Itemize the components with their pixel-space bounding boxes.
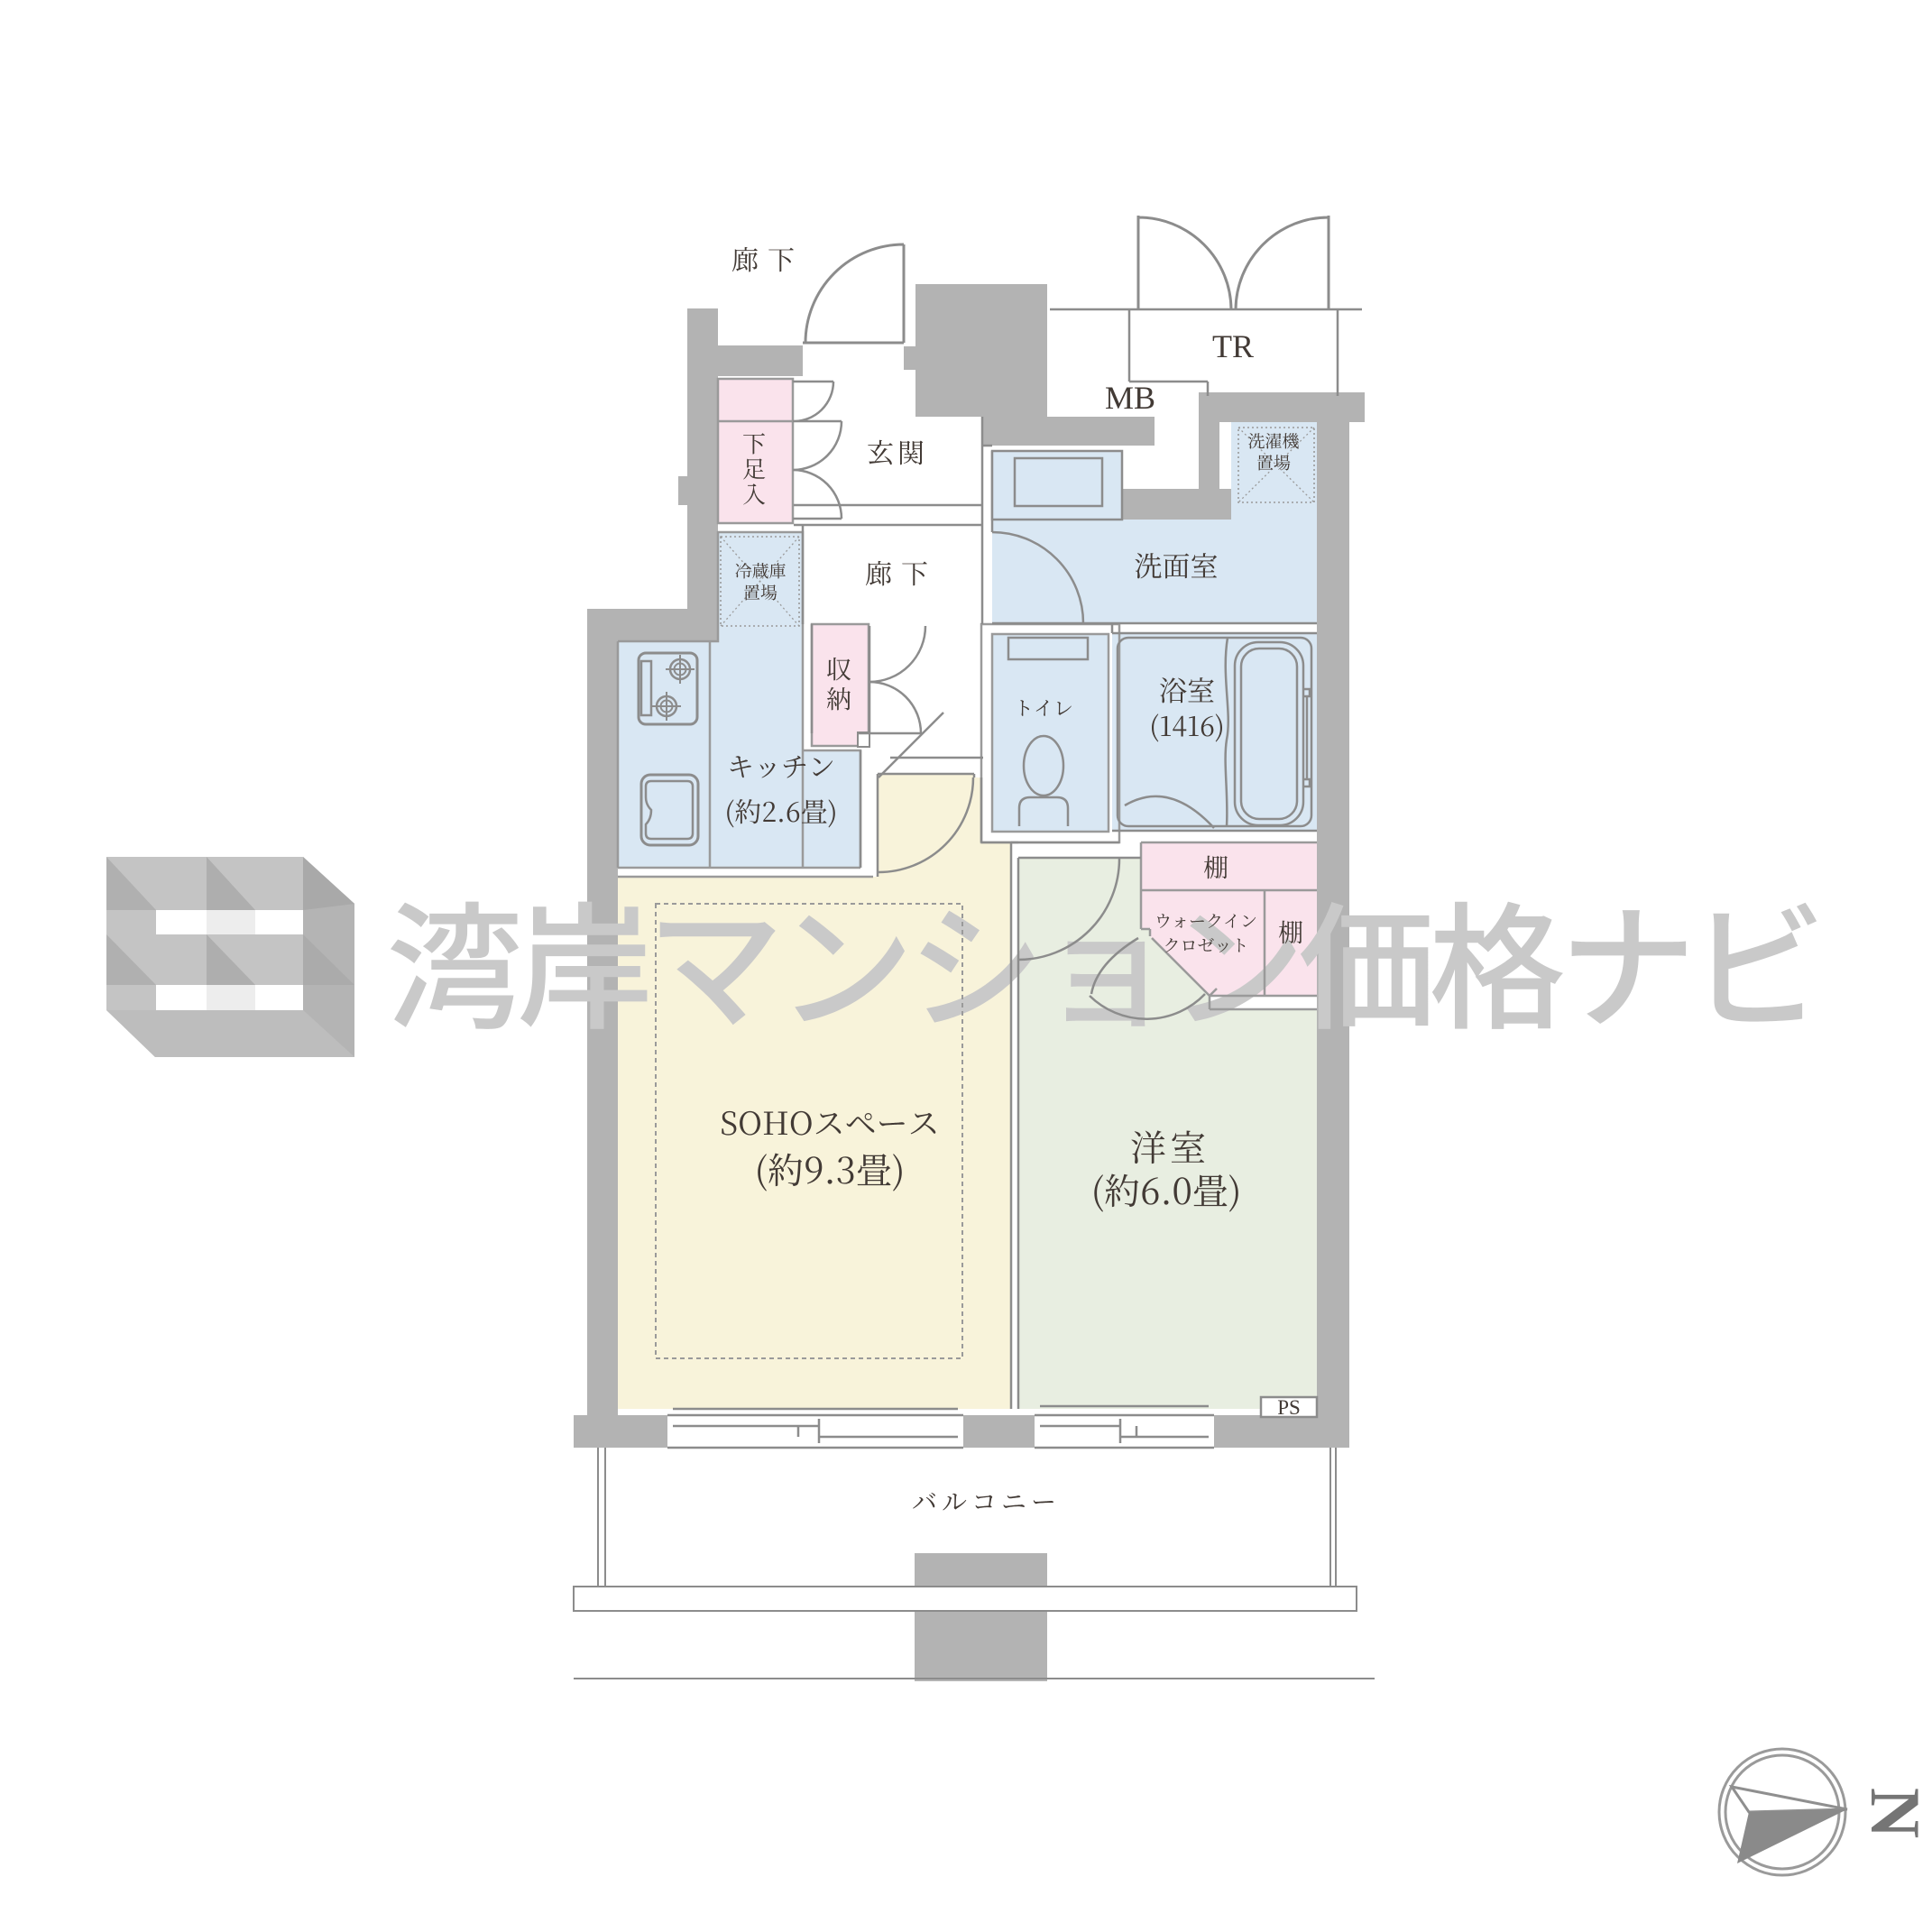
svg-text:TR: TR: [1212, 328, 1254, 364]
svg-text:PS: PS: [1277, 1396, 1301, 1419]
svg-text:MB: MB: [1105, 380, 1155, 416]
svg-text:N: N: [1856, 1788, 1932, 1838]
